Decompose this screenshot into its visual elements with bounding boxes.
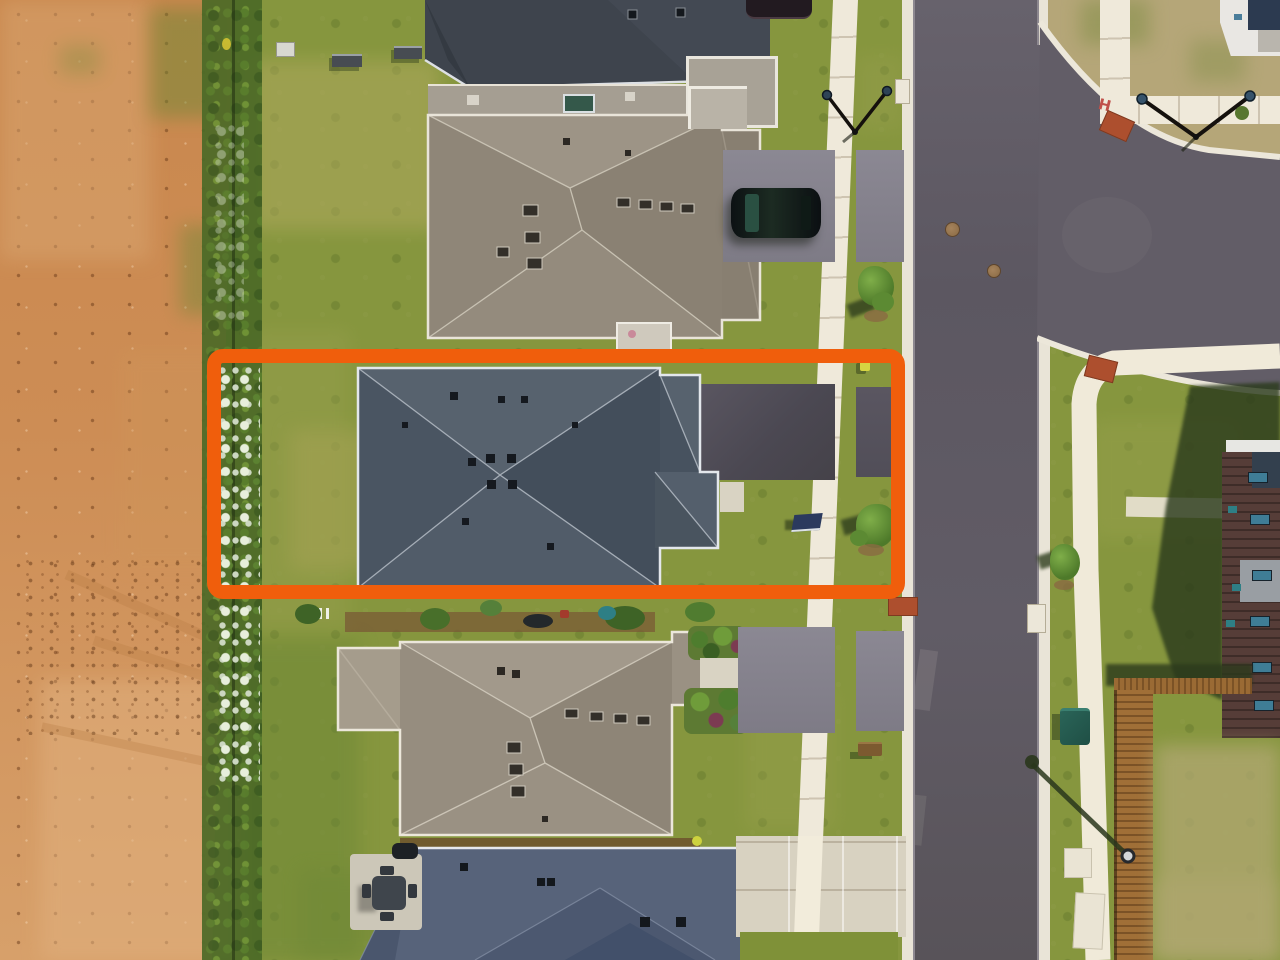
corner-building-roof: [1248, 0, 1280, 30]
street-tree-blob: [872, 292, 894, 312]
ac-unit: [1234, 14, 1242, 20]
street-tree: [1050, 544, 1080, 580]
white-flower-bushes-sparse: [212, 120, 244, 320]
tree-mulch-ring: [864, 310, 888, 322]
concrete-pad: [1073, 892, 1106, 949]
white-flower-bushes: [216, 600, 260, 785]
deck-planter: [628, 330, 636, 338]
grill: [392, 843, 418, 859]
streetlight-left-parkway: [813, 82, 905, 144]
streetlight-top-right: [1120, 85, 1280, 157]
window: [1250, 514, 1270, 525]
suv-rear-window: [801, 196, 811, 230]
patio-table: [372, 876, 406, 910]
house-tan-lower: [330, 618, 720, 843]
ac-unit: [1228, 506, 1237, 513]
picnic-bench: [332, 54, 362, 67]
shrub-blob: [480, 600, 502, 616]
tree-mulch-ring: [1054, 580, 1074, 590]
red-item: [560, 610, 569, 618]
window: [1252, 662, 1272, 673]
ac-unit: [1226, 620, 1235, 627]
window: [1254, 700, 1274, 711]
patio-chair: [380, 912, 394, 921]
patio-chair: [408, 884, 417, 898]
grass-strip-bottom: [740, 932, 898, 960]
driveway-house2-apron: [856, 150, 904, 262]
property-highlight-box: [207, 349, 905, 599]
dried-patch-bottom-right: [1155, 745, 1280, 960]
patio-chair: [362, 884, 371, 898]
red-concrete-pad: [888, 597, 918, 616]
dirt-light-patch: [0, 0, 150, 260]
driveway-house3: [738, 627, 835, 733]
yellow-flower-clump: [222, 38, 231, 50]
suv-windshield: [745, 194, 759, 232]
shrub-blob: [295, 604, 321, 624]
car-partial-top-edge: [746, 0, 812, 19]
park-bench: [858, 742, 882, 756]
window: [1252, 570, 1272, 581]
aerial-photo-scene: H: [0, 0, 1280, 960]
fire-hydrant-2: [692, 836, 702, 846]
window: [1248, 472, 1268, 483]
streetlight-bottom-right: [1018, 748, 1142, 866]
window: [1250, 616, 1270, 627]
teal-trash-bin: [1060, 708, 1090, 745]
ac-unit: [1232, 584, 1241, 591]
house2-porch-right: [688, 86, 747, 129]
manhole-cover: [987, 264, 1001, 278]
lawn-panel: [276, 42, 295, 57]
driveway-house3-apron: [856, 631, 904, 731]
patio-chair: [380, 866, 394, 875]
manhole-cover: [945, 222, 960, 237]
dirt-weeds: [60, 45, 100, 75]
corner-building-pad: [1258, 30, 1280, 52]
brick-house-balcony: [1240, 560, 1280, 602]
